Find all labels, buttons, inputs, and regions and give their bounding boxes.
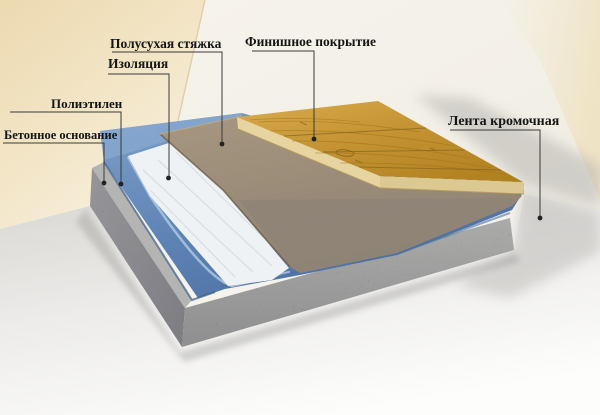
dot-finish-coating	[312, 137, 317, 142]
dot-edge-tape	[538, 216, 543, 221]
dot-insulation	[166, 176, 171, 181]
label-semi-dry-screed: Полусухая стяжка	[110, 36, 222, 51]
label-finish-coating: Финишное покрытие	[245, 34, 376, 49]
label-edge-tape: Лента кромочная	[448, 114, 560, 129]
dot-polyethylene	[119, 182, 124, 187]
dot-concrete-base	[102, 181, 107, 186]
floor-layers-diagram: Полусухая стяжка Изоляция Полиэтилен Бет…	[0, 0, 600, 415]
label-concrete-base: Бетонное основание	[4, 128, 118, 142]
dot-semi-dry-screed	[220, 142, 225, 147]
diagram-canvas: Полусухая стяжка Изоляция Полиэтилен Бет…	[0, 0, 600, 415]
label-insulation: Изоляция	[108, 56, 168, 71]
label-polyethylene: Полиэтилен	[51, 96, 123, 111]
